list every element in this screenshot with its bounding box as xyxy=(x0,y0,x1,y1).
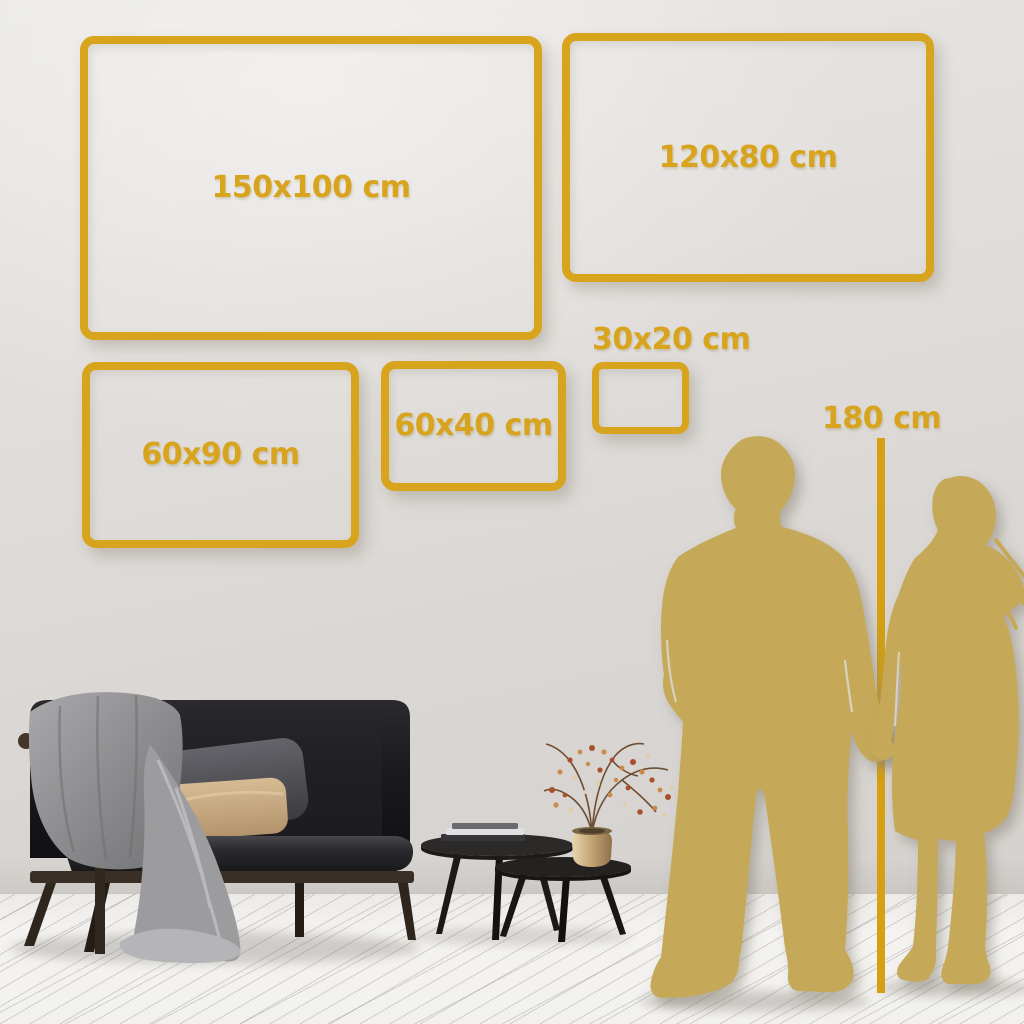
dried-plant xyxy=(544,744,668,833)
sofa-inner-shade xyxy=(58,712,382,840)
woman-arm-gap-line xyxy=(895,652,899,726)
size-frame-label: 60x90 cm xyxy=(141,440,299,470)
wall-shading xyxy=(0,856,1024,893)
sofa-armrest-dowel xyxy=(20,736,120,747)
wood-floor xyxy=(0,893,1024,1024)
sofa-dowel-knob xyxy=(18,733,34,749)
woman-hair-wisps xyxy=(988,540,1024,628)
dried-plant-berries xyxy=(549,745,674,817)
books-stack xyxy=(441,823,525,841)
size-frame-30x20-label: 30x20 cm xyxy=(592,325,750,355)
height-marker-label: 180 cm xyxy=(822,404,941,434)
size-frame-60x40: 60x40 cm xyxy=(381,361,566,491)
tan-pillow xyxy=(161,777,289,842)
size-frame-60x90: 60x90 cm xyxy=(82,362,359,548)
man-arm-gap-lines xyxy=(667,640,852,712)
sofa-body xyxy=(30,700,410,858)
size-frame-30x20 xyxy=(592,362,689,434)
size-frame-label: 120x80 cm xyxy=(659,143,838,173)
gray-pillow xyxy=(134,736,311,838)
size-frame-150x100: 150x100 cm xyxy=(80,36,542,340)
scene: 150x100 cm 120x80 cm 60x90 cm 60x40 cm 3… xyxy=(0,0,1024,1024)
size-frame-label: 150x100 cm xyxy=(211,173,410,203)
size-frame-120x80: 120x80 cm xyxy=(562,33,934,282)
size-frame-label: 60x40 cm xyxy=(394,411,552,441)
